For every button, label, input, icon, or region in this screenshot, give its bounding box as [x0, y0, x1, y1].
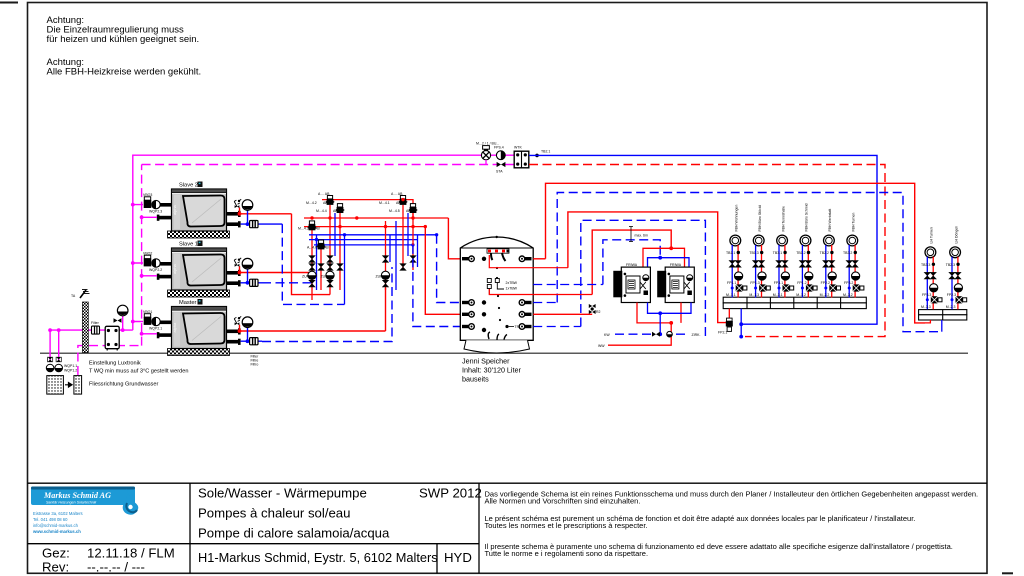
- svg-text:VBO2: VBO2: [143, 251, 152, 255]
- svg-text:M...4.4: M...4.4: [316, 209, 327, 213]
- svg-text:FP2.2: FP2.2: [821, 281, 830, 285]
- svg-text:FP1.1: FP1.1: [727, 281, 736, 285]
- svg-text:A...4.6: A...4.6: [307, 245, 317, 249]
- svg-text:Pompe di calore salamoia/acqua: Pompe di calore salamoia/acqua: [198, 526, 390, 541]
- svg-text:Slave 1: Slave 1: [179, 242, 198, 248]
- svg-text:für heizen und kühlen geeignet: für heizen und kühlen geeignet sein.: [47, 34, 200, 45]
- svg-text:LH Turnen: LH Turnen: [930, 227, 934, 243]
- svg-text:TB2.1: TB2.1: [541, 150, 550, 154]
- svg-text:Jenni Speicher: Jenni Speicher: [462, 357, 510, 366]
- svg-text:M..3.3: M..3.3: [921, 305, 931, 309]
- svg-text:STA: STA: [496, 170, 503, 174]
- svg-text:FBH Turnen: FBH Turnen: [852, 213, 856, 232]
- svg-text:FBH Büro Stöckli: FBH Büro Stöckli: [758, 205, 762, 232]
- svg-text:Tutte le norme e i regolamenti: Tutte le norme e i regolamenti sono da r…: [485, 549, 649, 558]
- svg-text:M..3.2: M..3.2: [843, 293, 853, 297]
- svg-text:AB: AB: [315, 226, 320, 230]
- svg-text:WTK: WTK: [514, 146, 522, 150]
- svg-text:TB2.2: TB2.2: [820, 251, 829, 255]
- svg-text:Sanitär Heizungen Solartechn: Sanitär Heizungen Solartechnik: [46, 501, 97, 505]
- svg-text:FP2.1: FP2.1: [718, 331, 727, 335]
- svg-text:2xTBW: 2xTBW: [506, 281, 518, 285]
- svg-text:TB3.3: TB3.3: [921, 263, 930, 267]
- svg-text:Alle Normen und Vorschriften s: Alle Normen und Vorschriften sind einzuh…: [485, 497, 641, 506]
- svg-text:M..2.2: M..2.2: [820, 293, 830, 297]
- svg-text:Filter: Filter: [91, 321, 100, 325]
- svg-text:FP3.1: FP3.1: [774, 281, 783, 285]
- svg-text:AB: AB: [333, 209, 338, 213]
- svg-text:Tel. 041 498 08 60: Tel. 041 498 08 60: [33, 517, 68, 522]
- svg-text:VBO3: VBO3: [143, 193, 152, 197]
- svg-text:M..1.3: M..1.3: [749, 293, 759, 297]
- svg-text:WQP1.1: WQP1.1: [64, 364, 77, 368]
- svg-text:TB1.3: TB1.3: [749, 251, 758, 255]
- svg-text:Einstellung Luxtronik: Einstellung Luxtronik: [89, 361, 141, 367]
- svg-text:FBH Wohnungen: FBH Wohnungen: [735, 205, 739, 232]
- svg-text:bauseits: bauseits: [462, 375, 489, 384]
- svg-text:info@schmid-markus.ch: info@schmid-markus.ch: [33, 523, 79, 528]
- svg-text:TB1.1: TB1.1: [726, 251, 735, 255]
- svg-text:M..2.3: M..2.3: [946, 305, 956, 309]
- svg-text:M...4.3: M...4.3: [298, 226, 309, 230]
- svg-text:Filtro: Filtro: [251, 363, 259, 367]
- svg-text:M...4.2: M...4.2: [306, 201, 317, 205]
- svg-text:FP1.2: FP1.2: [797, 281, 806, 285]
- svg-text:Alle FBH-Heizkreise werden gek: Alle FBH-Heizkreise werden gekühlt.: [47, 66, 202, 77]
- svg-text:AB: AB: [396, 201, 401, 205]
- svg-text:A ... AB: A ... AB: [318, 192, 330, 196]
- svg-text:FP3.3: FP3.3: [922, 293, 931, 297]
- svg-text:WQP1.2: WQP1.2: [64, 369, 77, 373]
- svg-text:FBH Tennishalle: FBH Tennishalle: [781, 206, 785, 231]
- svg-text:Eistrasse 3a, 6102 Malters: Eistrasse 3a, 6102 Malters: [33, 511, 83, 516]
- svg-text:FBH Werkstatt: FBH Werkstatt: [828, 209, 832, 232]
- svg-text:Fliessrichtung Grundwasser: Fliessrichtung Grundwasser: [89, 382, 158, 388]
- svg-text:TB2.3: TB2.3: [946, 263, 955, 267]
- svg-text:R2: R2: [596, 310, 601, 314]
- svg-text:WQP2.3: WQP2.3: [149, 210, 162, 214]
- svg-text:KW: KW: [604, 333, 610, 337]
- svg-text:TB3.1: TB3.1: [773, 251, 782, 255]
- svg-text:WQP2.2: WQP2.2: [149, 268, 162, 272]
- svg-text:Rev:: Rev:: [42, 560, 69, 575]
- svg-text:FP3.2: FP3.2: [844, 281, 853, 285]
- svg-text:AB: AB: [323, 201, 328, 205]
- svg-text:M...4.5: M...4.5: [389, 209, 400, 213]
- svg-text:Markus Schmid AG: Markus Schmid AG: [43, 491, 111, 500]
- svg-text:ZUP: ZUP: [302, 274, 310, 278]
- svg-text:Slave 2: Slave 2: [179, 183, 198, 189]
- svg-text:Gez:: Gez:: [42, 546, 70, 561]
- svg-text:max. 6m: max. 6m: [635, 234, 649, 238]
- svg-text:AB: AB: [406, 209, 411, 213]
- svg-text:LH Döngeli: LH Döngeli: [954, 226, 958, 244]
- svg-text:Sole/Wasser - Wärmepumpe: Sole/Wasser - Wärmepumpe: [198, 486, 367, 501]
- svg-text:T WQ min muss auf 3°C gestellt: T WQ min muss auf 3°C gestellt werden: [89, 369, 188, 375]
- svg-text:1xTBW: 1xTBW: [506, 287, 518, 291]
- svg-text:TA: TA: [71, 294, 76, 298]
- svg-text:SWP 2012: SWP 2012: [419, 486, 482, 501]
- svg-text:WQP2.1: WQP2.1: [149, 327, 162, 331]
- svg-text:HYD: HYD: [444, 550, 472, 565]
- svg-text:12.11.18 / FLM: 12.11.18 / FLM: [87, 546, 175, 561]
- svg-text:FBH Büro Schmid: FBH Büro Schmid: [805, 203, 809, 231]
- svg-text:H1-Markus Schmid, Eystr. 5, 61: H1-Markus Schmid, Eystr. 5, 6102 Malters: [198, 550, 438, 565]
- svg-text:M...4.1: M...4.1: [379, 201, 390, 205]
- svg-text:VBO1: VBO1: [143, 310, 152, 314]
- svg-text:Toutes les normes et le prescr: Toutes les normes et le prescriptions à …: [485, 521, 648, 530]
- svg-text:ZUP: ZUP: [321, 274, 329, 278]
- svg-text:FRIWA: FRIWA: [670, 263, 682, 267]
- svg-text:AB: AB: [324, 245, 329, 249]
- svg-text:FRIWA: FRIWA: [626, 263, 638, 267]
- svg-text:A ... AB: A ... AB: [391, 192, 403, 196]
- svg-text:FP2.3: FP2.3: [947, 293, 956, 297]
- svg-text:M..1.1: M..1.1: [726, 293, 736, 297]
- svg-text:ZIRK.: ZIRK.: [692, 333, 701, 337]
- svg-text:Inhalt: 30'120 Liter: Inhalt: 30'120 Liter: [462, 366, 522, 375]
- svg-text:FP1.3: FP1.3: [750, 281, 759, 285]
- svg-text:TB3.2: TB3.2: [843, 251, 852, 255]
- svg-text:TB1.2: TB1.2: [796, 251, 805, 255]
- svg-text:M..1.2: M..1.2: [796, 293, 806, 297]
- svg-text:M..3.1: M..3.1: [773, 293, 783, 297]
- svg-text:FPS.4: FPS.4: [494, 146, 504, 150]
- svg-text:www.schmid-markus.ch: www.schmid-markus.ch: [32, 529, 81, 534]
- svg-text:TRi: TRi: [515, 325, 521, 329]
- svg-text:WW: WW: [598, 344, 605, 348]
- svg-text:--.--.-- / ---: --.--.-- / ---: [87, 560, 145, 575]
- svg-text:ZUP: ZUP: [376, 274, 384, 278]
- svg-text:Master: Master: [179, 300, 196, 306]
- svg-text:Pompes à chaleur sol/eau: Pompes à chaleur sol/eau: [198, 506, 350, 521]
